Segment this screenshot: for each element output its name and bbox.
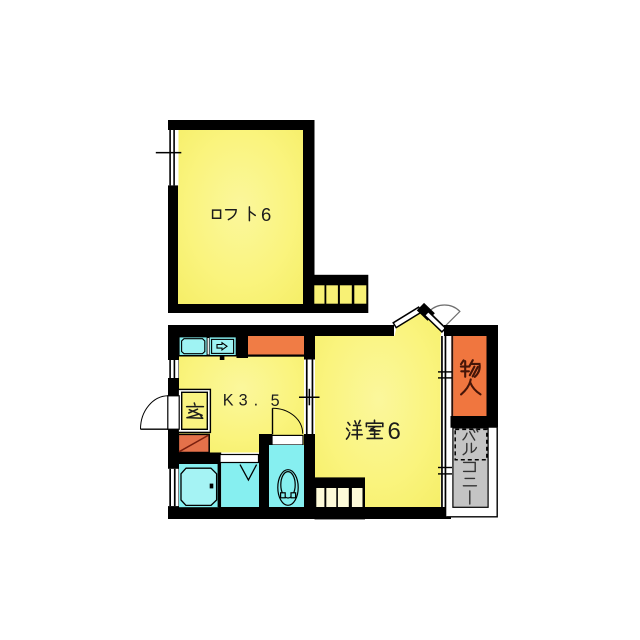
svg-text:3: 3 xyxy=(239,392,248,410)
svg-text:6: 6 xyxy=(261,204,271,225)
svg-text:K: K xyxy=(223,391,234,409)
svg-text:5: 5 xyxy=(271,392,280,410)
svg-text:6: 6 xyxy=(388,418,401,445)
svg-text:.: . xyxy=(254,392,259,410)
